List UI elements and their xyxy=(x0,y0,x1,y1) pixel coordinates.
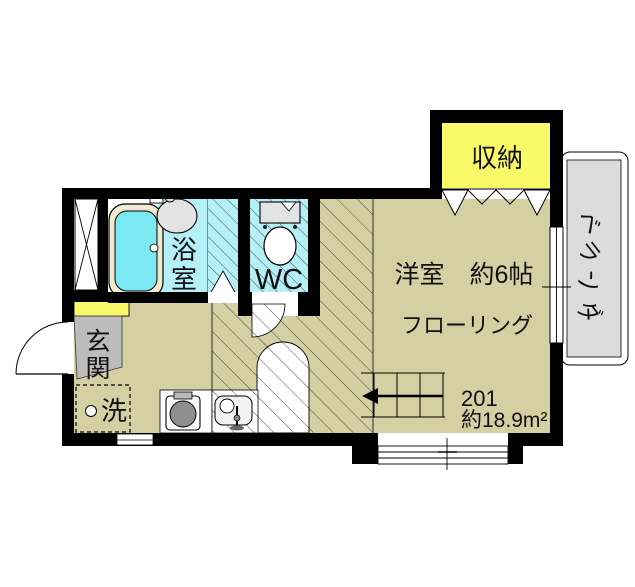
kitchen-window xyxy=(117,434,153,445)
unit-area: 約18.9m² xyxy=(461,409,547,432)
entrance-label-char2: 関 xyxy=(85,355,110,383)
floor-plan: 収納 浴 室 WC 洋室 約6帖 フローリング 玄 関 洗 ベ ラ ン ダ 20… xyxy=(0,0,635,587)
storage-label: 収納 xyxy=(471,143,523,173)
laundry-label: 洗 xyxy=(101,396,127,426)
western-room-floor-label: フローリング xyxy=(401,313,533,338)
unit-number: 201 xyxy=(461,386,498,411)
bathroom-label-char1: 浴 xyxy=(171,235,197,265)
tub-handle-icon xyxy=(150,244,158,252)
stove-icon xyxy=(166,392,200,430)
room-door-swing xyxy=(257,342,309,433)
pipe-space xyxy=(75,199,98,290)
entrance-label-char1: 玄 xyxy=(85,328,110,356)
western-room-size-label: 洋室 約6帖 xyxy=(395,261,534,289)
washer-tap-icon xyxy=(86,406,97,417)
bathtub-icon xyxy=(109,204,163,298)
bathroom-label-char2: 室 xyxy=(171,264,197,294)
toilet-label: WC xyxy=(255,264,303,296)
bath-door-threshold xyxy=(208,292,238,303)
